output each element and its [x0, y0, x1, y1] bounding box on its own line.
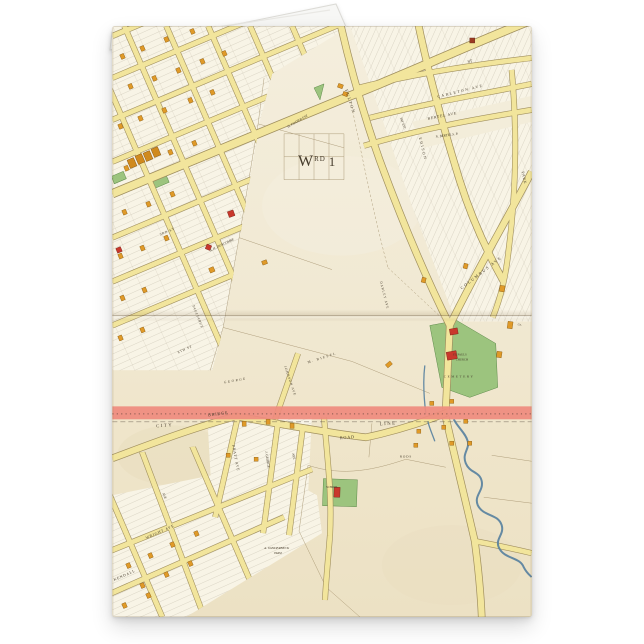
label-vanderbeck-farm: FARM: [273, 551, 282, 555]
label-st-pauls-church: CHURCH: [456, 357, 469, 361]
label-school: SCHOOL: [326, 485, 338, 489]
label-rods: RODS: [400, 454, 412, 458]
vintage-map-artwork: WRD1 FULTON EDISON COLUMBUS AVE CARLETON…: [112, 26, 532, 617]
label-st-pauls: ST. PAULS: [453, 352, 467, 356]
label-line: LINE: [380, 420, 397, 426]
card-front-panel: WRD1 FULTON EDISON COLUMBUS AVE CARLETON…: [112, 26, 532, 617]
label-cemetery: CEMETERY: [444, 374, 475, 378]
product-image-background: WRD1 FULTON EDISON COLUMBUS AVE CARLETON…: [0, 0, 644, 644]
label-vanderbeck: A. VANDERBECK: [263, 546, 290, 550]
label-co: Co.: [518, 322, 522, 326]
fold-crease: [112, 310, 531, 322]
